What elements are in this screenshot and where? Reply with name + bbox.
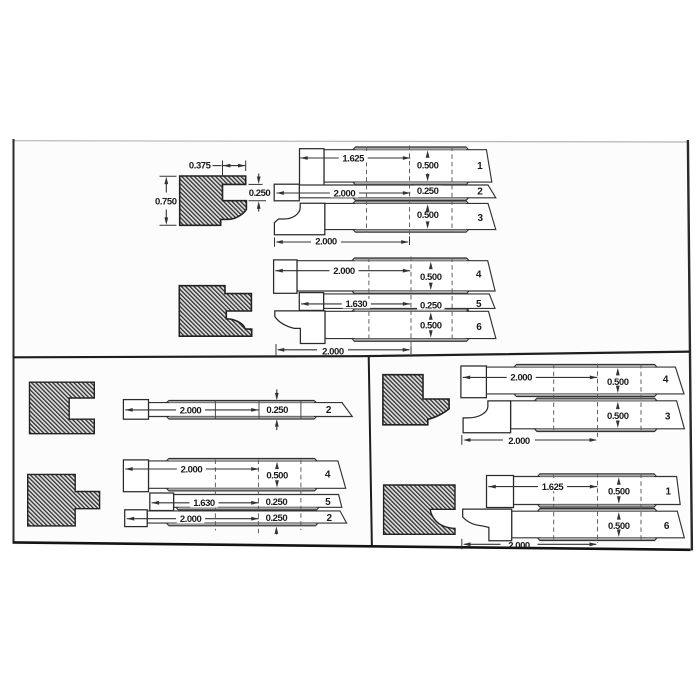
svg-text:4: 4 (476, 270, 482, 281)
svg-text:1.630: 1.630 (346, 299, 368, 310)
svg-text:0.250: 0.250 (249, 188, 271, 199)
svg-text:2.000: 2.000 (508, 436, 530, 447)
svg-text:2.000: 2.000 (180, 405, 202, 416)
svg-text:0.250: 0.250 (420, 300, 442, 311)
svg-text:1: 1 (666, 486, 672, 497)
svg-text:0.250: 0.250 (266, 513, 288, 524)
svg-text:3: 3 (478, 213, 484, 224)
svg-text:2.000: 2.000 (181, 464, 203, 475)
svg-text:2.000: 2.000 (334, 188, 356, 199)
svg-text:4: 4 (325, 469, 331, 480)
svg-text:2: 2 (327, 513, 333, 524)
svg-text:4: 4 (663, 375, 669, 386)
svg-text:0.500: 0.500 (420, 272, 442, 283)
svg-text:0.500: 0.500 (607, 411, 629, 422)
svg-text:6: 6 (664, 521, 670, 532)
svg-text:6: 6 (476, 322, 482, 333)
svg-text:3: 3 (665, 412, 671, 423)
svg-text:0.375: 0.375 (189, 161, 212, 172)
svg-text:2.000: 2.000 (508, 540, 530, 551)
svg-text:0.750: 0.750 (155, 197, 177, 208)
svg-text:1: 1 (477, 161, 483, 172)
svg-text:2.000: 2.000 (322, 346, 344, 357)
svg-text:0.250: 0.250 (417, 186, 439, 197)
svg-text:2.000: 2.000 (315, 237, 337, 248)
svg-text:1.625: 1.625 (342, 153, 365, 164)
svg-text:2.000: 2.000 (333, 266, 355, 277)
svg-text:2.000: 2.000 (510, 373, 532, 384)
svg-text:0.500: 0.500 (417, 160, 439, 171)
svg-text:5: 5 (476, 299, 482, 310)
svg-text:0.500: 0.500 (420, 321, 442, 332)
svg-text:0.250: 0.250 (266, 405, 288, 416)
svg-text:5: 5 (325, 497, 331, 508)
svg-text:1.625: 1.625 (542, 482, 565, 493)
svg-text:1.630: 1.630 (193, 498, 215, 509)
svg-text:0.500: 0.500 (417, 210, 439, 221)
svg-text:0.500: 0.500 (266, 471, 288, 482)
svg-text:2: 2 (477, 187, 483, 198)
svg-text:2: 2 (326, 405, 332, 416)
svg-text:2.000: 2.000 (180, 514, 202, 525)
svg-text:0.500: 0.500 (608, 487, 630, 498)
svg-text:0.250: 0.250 (266, 497, 288, 508)
